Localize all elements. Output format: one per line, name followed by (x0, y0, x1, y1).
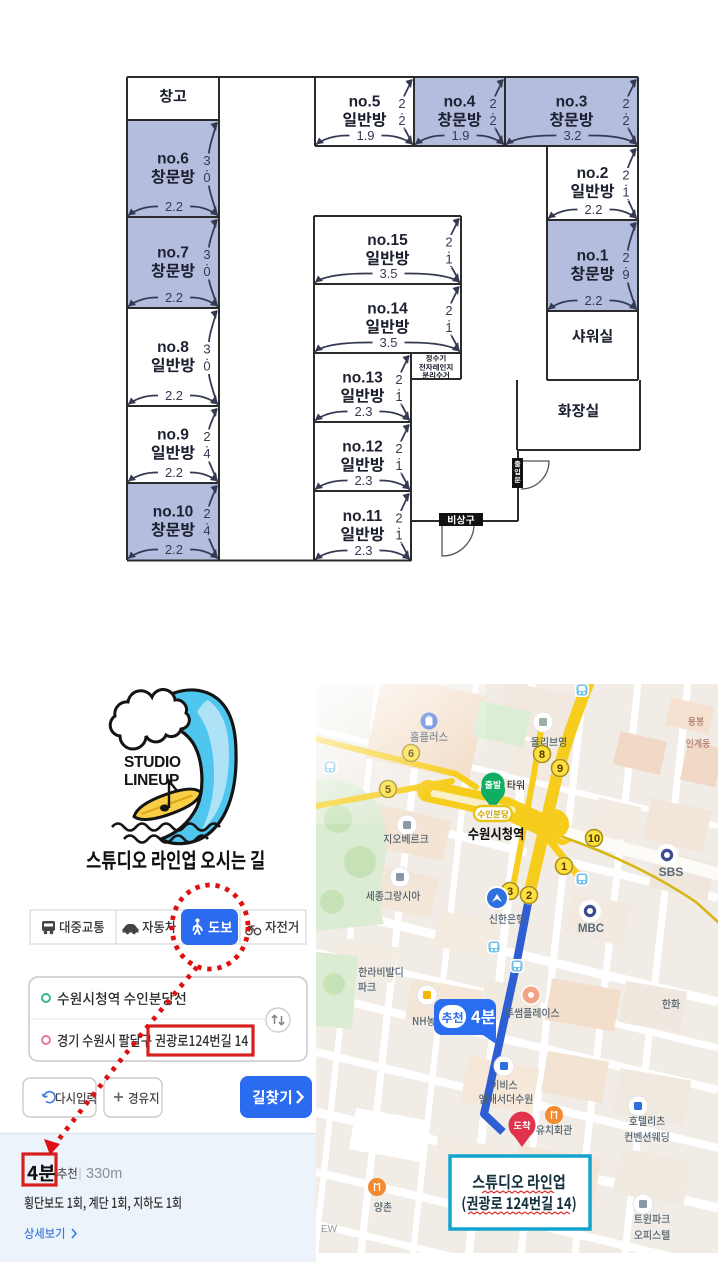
svg-text:1.9: 1.9 (451, 128, 469, 143)
svg-text:3.5: 3.5 (379, 335, 397, 350)
svg-text:3.2: 3.2 (563, 128, 581, 143)
svg-text:no.10: no.10 (153, 504, 193, 521)
svg-text:2: 2 (526, 890, 532, 902)
svg-text:1: 1 (561, 861, 567, 873)
svg-text:1: 1 (445, 252, 452, 267)
svg-text:2.3: 2.3 (354, 543, 372, 558)
svg-text:2: 2 (622, 113, 629, 128)
svg-text:2.3: 2.3 (354, 473, 372, 488)
svg-text:no.6: no.6 (157, 151, 189, 168)
svg-text:MBC: MBC (578, 923, 604, 935)
svg-text:0: 0 (203, 264, 210, 279)
svg-text:1: 1 (395, 389, 402, 404)
svg-text:no.15: no.15 (367, 232, 408, 249)
svg-text:3.5: 3.5 (379, 266, 397, 281)
svg-text:1: 1 (445, 320, 452, 335)
svg-text:8: 8 (539, 749, 545, 761)
svg-text:no.8: no.8 (157, 339, 189, 356)
svg-text:no.7: no.7 (157, 245, 189, 262)
svg-text:330m: 330m (86, 1166, 122, 1182)
svg-text:2: 2 (398, 113, 405, 128)
svg-text:no.3: no.3 (556, 94, 588, 111)
svg-text:1: 1 (395, 458, 402, 473)
svg-text:2.2: 2.2 (584, 202, 602, 217)
svg-text:2: 2 (489, 113, 496, 128)
svg-text:1: 1 (395, 528, 402, 543)
svg-text:2.2: 2.2 (165, 465, 183, 480)
svg-text:2.3: 2.3 (354, 404, 372, 419)
svg-text:1.9: 1.9 (356, 128, 374, 143)
svg-text:4: 4 (203, 523, 210, 538)
svg-text:SBS: SBS (659, 865, 684, 879)
svg-text:no.12: no.12 (342, 439, 382, 456)
svg-text:STUDIO: STUDIO (124, 754, 181, 771)
svg-text:no.2: no.2 (577, 165, 609, 182)
svg-text:no.5: no.5 (349, 94, 381, 111)
svg-text:no.13: no.13 (342, 370, 383, 387)
svg-text:0: 0 (203, 359, 210, 374)
svg-text:no.14: no.14 (367, 301, 408, 318)
svg-text:10: 10 (588, 833, 600, 845)
svg-text:9: 9 (622, 267, 629, 282)
svg-text:2.2: 2.2 (165, 199, 183, 214)
svg-text:2.2: 2.2 (165, 290, 183, 305)
svg-text:no.1: no.1 (577, 248, 609, 265)
svg-text:2.2: 2.2 (165, 388, 183, 403)
svg-text:9: 9 (557, 763, 563, 775)
svg-text:2.2: 2.2 (165, 542, 183, 557)
svg-text:no.9: no.9 (157, 427, 189, 444)
svg-text:EW: EW (321, 1224, 338, 1235)
svg-text:4: 4 (203, 446, 210, 461)
svg-text:2.2: 2.2 (584, 293, 602, 308)
svg-text:1: 1 (622, 185, 629, 200)
svg-text:no.11: no.11 (343, 508, 383, 525)
svg-text:no.4: no.4 (444, 94, 476, 111)
svg-text:LINEUP: LINEUP (124, 772, 179, 789)
svg-text:0: 0 (203, 170, 210, 185)
